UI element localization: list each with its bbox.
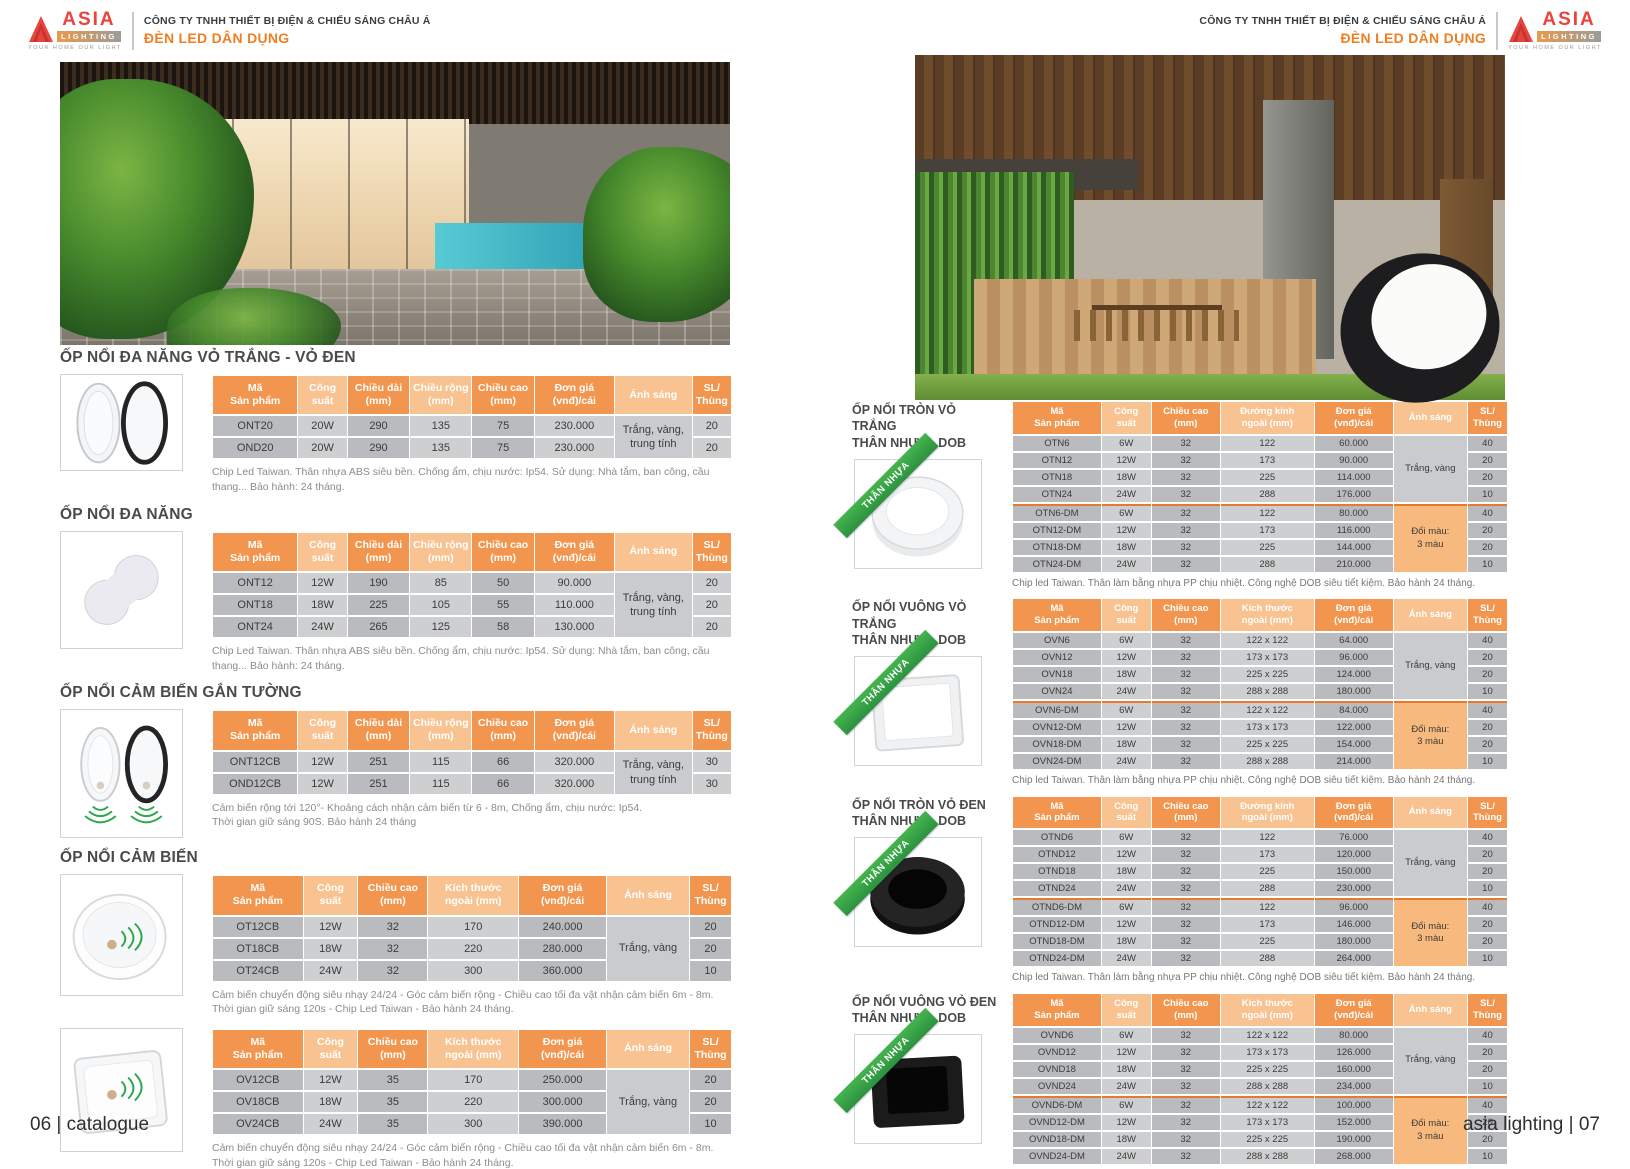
product-code-cell: OVN24 — [1013, 684, 1101, 699]
column-header: Mã Sản phẩm — [213, 876, 303, 914]
column-header: Mã Sản phẩm — [1013, 994, 1101, 1026]
value-cell: 115 — [410, 774, 471, 794]
product-table: Mã Sản phẩmCông suấtChiều cao (mm)Kích t… — [1012, 992, 1508, 1166]
section-op-noi-vuong-vo-trang: ỐP NỔI VUÔNG VỎ TRẮNG THÂN NHỰA - DOB TH… — [852, 597, 1508, 787]
qty-per-box-cell: 20 — [1468, 917, 1507, 932]
column-header: Ánh sáng — [607, 876, 689, 914]
product-code-cell: OVN6-DM — [1013, 701, 1101, 718]
value-cell: 122 x 122 — [1221, 633, 1314, 648]
qty-per-box-cell: 10 — [690, 961, 731, 981]
table-row: OVN66W32122 x 12264.000Trắng, vàng40 — [1013, 633, 1507, 648]
black-round-led-fixture-image — [1333, 242, 1507, 414]
value-cell: 32 — [1152, 1132, 1220, 1147]
qty-per-box-cell: 20 — [693, 595, 731, 615]
value-cell: 173 — [1221, 523, 1314, 538]
product-table: Mã Sản phẩmCông suấtChiều cao (mm)Kích t… — [212, 874, 732, 982]
table-note: Cảm biến chuyển động siêu nhạy 24/24 - G… — [212, 988, 732, 1017]
column-header: Đơn giá (vnđ)/cái — [1315, 994, 1393, 1026]
value-cell: 32 — [1152, 1149, 1220, 1164]
value-cell: 90.000 — [535, 573, 614, 593]
column-header: SL/ Thùng — [690, 876, 731, 914]
company-name: CÔNG TY TNHH THIẾT BỊ ĐIỆN & CHIẾU SÁNG … — [144, 15, 431, 27]
column-header: Ánh sáng — [615, 533, 692, 571]
value-cell: 6W — [1102, 701, 1151, 718]
value-cell: 150.000 — [1315, 864, 1393, 879]
value-cell: 12W — [1102, 847, 1151, 862]
logo-tagline: YOUR HOME OUR LIGHT — [28, 45, 122, 51]
value-cell: 135 — [410, 438, 471, 458]
qty-per-box-cell: 10 — [1468, 557, 1507, 572]
product-code-cell: OVND6 — [1013, 1028, 1101, 1043]
column-header: Ánh sáng — [1394, 797, 1467, 829]
value-cell: 32 — [1152, 453, 1220, 468]
value-cell: 126.000 — [1315, 1045, 1393, 1060]
value-cell: 32 — [1152, 557, 1220, 572]
column-header: Chiều dài (mm) — [348, 533, 409, 571]
product-table: Mã Sản phẩmCông suấtChiều cao (mm)Đường … — [1012, 795, 1508, 969]
product-code-cell: OVN18 — [1013, 667, 1101, 682]
page-header-left: ASIA LIGHTING YOUR HOME OUR LIGHT CÔNG T… — [28, 10, 431, 51]
product-code-cell: OND20 — [213, 438, 297, 458]
product-code-cell: OVN18-DM — [1013, 737, 1101, 752]
qty-per-box-cell: 10 — [1468, 684, 1507, 699]
product-code-cell: OTN24-DM — [1013, 557, 1101, 572]
section-op-noi-cam-bien-square: Mã Sản phẩmCông suấtChiều cao (mm)Kích t… — [60, 1028, 732, 1169]
value-cell: 230.000 — [535, 438, 614, 458]
product-image-round-sensor-light — [60, 874, 183, 996]
value-cell: 288 — [1221, 557, 1314, 572]
value-cell: 12W — [298, 752, 347, 772]
qty-per-box-cell: 20 — [1468, 864, 1507, 879]
value-cell: 32 — [1152, 487, 1220, 502]
value-cell: 265 — [348, 617, 409, 637]
value-cell: 18W — [1102, 470, 1151, 485]
light-color-cell: Trắng, vàng — [1394, 830, 1467, 896]
qty-per-box-cell: 20 — [1468, 737, 1507, 752]
light-color-cell: Trắng, vàng — [607, 1070, 689, 1134]
qty-per-box-cell: 10 — [1468, 951, 1507, 966]
product-code-cell: OTN6-DM — [1013, 504, 1101, 521]
table-row: OV12CB12W35170250.000Trắng, vàng20 — [213, 1070, 731, 1090]
value-cell: 64.000 — [1315, 633, 1393, 648]
value-cell: 75 — [472, 438, 533, 458]
product-code-cell: ONT12 — [213, 573, 297, 593]
qty-per-box-cell: 40 — [1468, 1096, 1507, 1113]
value-cell: 173 x 173 — [1221, 1045, 1314, 1060]
page-right: CÔNG TY TNHH THIẾT BỊ ĐIỆN & CHIẾU SÁNG … — [815, 0, 1630, 1169]
value-cell: 122 — [1221, 504, 1314, 521]
column-header: Chiều cao (mm) — [1152, 994, 1220, 1026]
section-title: ỐP NỔI ĐA NĂNG — [60, 506, 732, 524]
qty-per-box-cell: 20 — [1468, 523, 1507, 538]
column-header: SL/ Thùng — [693, 376, 731, 414]
value-cell: 152.000 — [1315, 1115, 1393, 1130]
qty-per-box-cell: 20 — [690, 1070, 731, 1090]
value-cell: 173 x 173 — [1221, 1115, 1314, 1130]
value-cell: 18W — [1102, 737, 1151, 752]
catalogue-section-name: ĐÈN LED DÂN DỤNG — [144, 30, 431, 46]
qty-per-box-cell: 20 — [1468, 667, 1507, 682]
product-table: Mã Sản phẩmCông suấtChiều cao (mm)Đường … — [1012, 400, 1508, 574]
qty-per-box-cell: 10 — [1468, 881, 1507, 896]
product-code-cell: OV18CB — [213, 1092, 303, 1112]
light-color-cell: Trắng, vàng, trung tính — [615, 416, 692, 458]
column-header: Ánh sáng — [607, 1030, 689, 1068]
value-cell: 251 — [348, 752, 409, 772]
value-cell: 288 x 288 — [1221, 754, 1314, 769]
light-color-cell: Đổi màu: 3 màu — [1394, 701, 1467, 769]
value-cell: 18W — [304, 939, 358, 959]
value-cell: 24W — [1102, 951, 1151, 966]
page-number-right: asia lighting | 07 — [1463, 1114, 1600, 1136]
value-cell: 173 — [1221, 453, 1314, 468]
product-code-cell: ONT20 — [213, 416, 297, 436]
value-cell: 32 — [1152, 898, 1220, 915]
value-cell: 210.000 — [1315, 557, 1393, 572]
product-code-cell: OVND12-DM — [1013, 1115, 1101, 1130]
table-row: OVND66W32122 x 12280.000Trắng, vàng40 — [1013, 1028, 1507, 1043]
light-color-cell: Đổi màu: 3 màu — [1394, 1096, 1467, 1164]
hero-photo-villa — [60, 62, 730, 345]
qty-per-box-cell: 10 — [1468, 754, 1507, 769]
value-cell: 288 x 288 — [1221, 1079, 1314, 1094]
product-code-cell: OTND18-DM — [1013, 934, 1101, 949]
product-code-cell: OVND18-DM — [1013, 1132, 1101, 1147]
value-cell: 170 — [428, 1070, 518, 1090]
value-cell: 173 x 173 — [1221, 720, 1314, 735]
value-cell: 18W — [304, 1092, 358, 1112]
column-header: Kích thước ngoài (mm) — [428, 876, 518, 914]
column-header: SL/ Thùng — [1468, 599, 1507, 631]
product-code-cell: ONT12CB — [213, 752, 297, 772]
value-cell: 120.000 — [1315, 847, 1393, 862]
column-header: SL/ Thùng — [693, 711, 731, 749]
column-header: Công suất — [298, 533, 347, 571]
value-cell: 32 — [358, 961, 427, 981]
value-cell: 32 — [1152, 540, 1220, 555]
value-cell: 6W — [1102, 1096, 1151, 1113]
value-cell: 115 — [410, 752, 471, 772]
value-cell: 32 — [1152, 1028, 1220, 1043]
value-cell: 32 — [1152, 737, 1220, 752]
column-header: Đường kính ngoài (mm) — [1221, 797, 1314, 829]
section-op-noi-tron-vo-den: ỐP NỔI TRÒN VỎ ĐEN THÂN NHỰA - DOB THÂN … — [852, 795, 1508, 985]
value-cell: 122 x 122 — [1221, 701, 1314, 718]
value-cell: 240.000 — [519, 917, 606, 937]
logo-sub-text: LIGHTING — [57, 31, 121, 42]
value-cell: 18W — [1102, 934, 1151, 949]
product-code-cell: OVN24-DM — [1013, 754, 1101, 769]
value-cell: 32 — [1152, 1115, 1220, 1130]
qty-per-box-cell: 30 — [693, 774, 731, 794]
column-header: Đơn giá (vnđ)/cái — [519, 1030, 606, 1068]
value-cell: 96.000 — [1315, 650, 1393, 665]
value-cell: 105 — [410, 595, 471, 615]
value-cell: 146.000 — [1315, 917, 1393, 932]
product-code-cell: OTN18 — [1013, 470, 1101, 485]
value-cell: 66 — [472, 774, 533, 794]
value-cell: 225 — [1221, 540, 1314, 555]
column-header: Chiều cao (mm) — [1152, 402, 1220, 434]
value-cell: 18W — [1102, 540, 1151, 555]
value-cell: 6W — [1102, 830, 1151, 845]
value-cell: 320.000 — [535, 774, 614, 794]
value-cell: 24W — [1102, 487, 1151, 502]
asia-lighting-logo: ASIA LIGHTING YOUR HOME OUR LIGHT — [28, 10, 122, 51]
value-cell: 32 — [1152, 684, 1220, 699]
value-cell: 288 — [1221, 881, 1314, 896]
value-cell: 225 — [1221, 470, 1314, 485]
product-image-peanut-light — [60, 531, 183, 649]
value-cell: 84.000 — [1315, 701, 1393, 718]
light-color-cell: Trắng, vàng — [1394, 436, 1467, 502]
column-header: Công suất — [1102, 994, 1151, 1026]
product-code-cell: OVND12 — [1013, 1045, 1101, 1060]
value-cell: 32 — [1152, 1062, 1220, 1077]
table-row: OT12CB12W32170240.000Trắng, vàng20 — [213, 917, 731, 937]
table-row: OTND66W3212276.000Trắng, vàng40 — [1013, 830, 1507, 845]
table-row: ONT2020W29013575230.000Trắng, vàng, trun… — [213, 416, 731, 436]
qty-per-box-cell: 10 — [1468, 1079, 1507, 1094]
column-header: Đơn giá (vnđ)/cái — [1315, 797, 1393, 829]
value-cell: 35 — [358, 1092, 427, 1112]
product-code-cell: OVN12 — [1013, 650, 1101, 665]
table-note: Chip Led Taiwan. Thân nhựa ABS siêu bền.… — [212, 644, 732, 673]
value-cell: 24W — [1102, 1079, 1151, 1094]
value-cell: 66 — [472, 752, 533, 772]
column-header: Kích thước ngoài (mm) — [428, 1030, 518, 1068]
column-header: Chiều rộng (mm) — [410, 711, 471, 749]
value-cell: 225 x 225 — [1221, 737, 1314, 752]
value-cell: 32 — [1152, 470, 1220, 485]
column-header: Công suất — [1102, 797, 1151, 829]
value-cell: 24W — [1102, 557, 1151, 572]
table-note: Chip led Taiwan. Thân làm bằng nhựa PP c… — [1012, 971, 1508, 985]
product-code-cell: OV24CB — [213, 1114, 303, 1134]
value-cell: 173 — [1221, 917, 1314, 932]
product-code-cell: OVN6 — [1013, 633, 1101, 648]
value-cell: 80.000 — [1315, 504, 1393, 521]
value-cell: 173 — [1221, 847, 1314, 862]
value-cell: 280.000 — [519, 939, 606, 959]
qty-per-box-cell: 20 — [693, 416, 731, 436]
qty-per-box-cell: 40 — [1468, 633, 1507, 648]
product-code-cell: OTND6-DM — [1013, 898, 1101, 915]
logo-brand-text: ASIA — [1542, 10, 1595, 29]
product-image-oval-duo — [60, 374, 183, 471]
company-name: CÔNG TY TNHH THIẾT BỊ ĐIỆN & CHIẾU SÁNG … — [1199, 15, 1486, 27]
table-row: OTN6-DM6W3212280.000Đổi màu: 3 màu40 — [1013, 504, 1507, 521]
value-cell: 6W — [1102, 633, 1151, 648]
table-note: Chip led Taiwan. Thân làm bằng nhựa PP c… — [1012, 774, 1508, 788]
value-cell: 6W — [1102, 436, 1151, 451]
product-code-cell: ONT18 — [213, 595, 297, 615]
product-code-cell: OTN18-DM — [1013, 540, 1101, 555]
qty-per-box-cell: 40 — [1468, 830, 1507, 845]
section-op-noi-cam-bien-gan-tuong: ỐP NỔI CẢM BIẾN GẮN TƯỜNG — [60, 684, 732, 838]
column-header: Đơn giá (vnđ)/cái — [535, 711, 614, 749]
value-cell: 76.000 — [1315, 830, 1393, 845]
column-header: Đơn giá (vnđ)/cái — [519, 876, 606, 914]
value-cell: 225 — [1221, 864, 1314, 879]
column-header: Ánh sáng — [615, 376, 692, 414]
qty-per-box-cell: 40 — [1468, 898, 1507, 915]
value-cell: 35 — [358, 1070, 427, 1090]
section-op-noi-vuong-vo-den: ỐP NỔI VUÔNG VỎ ĐEN THÂN NHỰA - DOB THÂN… — [852, 992, 1508, 1169]
value-cell: 251 — [348, 774, 409, 794]
qty-per-box-cell: 40 — [1468, 436, 1507, 451]
value-cell: 12W — [1102, 453, 1151, 468]
light-color-cell: Trắng, vàng — [607, 917, 689, 981]
value-cell: 144.000 — [1315, 540, 1393, 555]
qty-per-box-cell: 10 — [690, 1114, 731, 1134]
value-cell: 24W — [1102, 881, 1151, 896]
value-cell: 122 — [1221, 898, 1314, 915]
qty-per-box-cell: 10 — [1468, 1149, 1507, 1164]
value-cell: 32 — [1152, 1096, 1220, 1113]
catalogue-section-name: ĐÈN LED DÂN DỤNG — [1341, 30, 1487, 46]
value-cell: 190.000 — [1315, 1132, 1393, 1147]
value-cell: 6W — [1102, 1028, 1151, 1043]
value-cell: 12W — [298, 573, 347, 593]
value-cell: 12W — [298, 774, 347, 794]
column-header: Mã Sản phẩm — [213, 711, 297, 749]
value-cell: 390.000 — [519, 1114, 606, 1134]
value-cell: 225 x 225 — [1221, 1132, 1314, 1147]
column-header: Chiều cao (mm) — [472, 376, 533, 414]
product-code-cell: OTN12-DM — [1013, 523, 1101, 538]
value-cell: 290 — [348, 438, 409, 458]
value-cell: 122 x 122 — [1221, 1096, 1314, 1113]
value-cell: 12W — [1102, 917, 1151, 932]
value-cell: 122 — [1221, 830, 1314, 845]
product-code-cell: OTND12-DM — [1013, 917, 1101, 932]
value-cell: 32 — [1152, 436, 1220, 451]
column-header: Công suất — [304, 1030, 358, 1068]
qty-per-box-cell: 20 — [690, 939, 731, 959]
value-cell: 32 — [358, 939, 427, 959]
value-cell: 220 — [428, 939, 518, 959]
column-header: Đơn giá (vnđ)/cái — [535, 376, 614, 414]
table-row: OTND6-DM6W3212296.000Đổi màu: 3 màu40 — [1013, 898, 1507, 915]
column-header: Chiều cao (mm) — [472, 711, 533, 749]
column-header: Công suất — [298, 711, 347, 749]
product-table: Mã Sản phẩmCông suấtChiều dài (mm)Chiều … — [212, 374, 732, 460]
column-header: Chiều cao (mm) — [472, 533, 533, 571]
value-cell: 100.000 — [1315, 1096, 1393, 1113]
column-header: Mã Sản phẩm — [1013, 599, 1101, 631]
product-code-cell: OTN24 — [1013, 487, 1101, 502]
section-op-noi-cam-bien-round: ỐP NỔI CẢM BIẾN Mã Sản phẩmCôn — [60, 849, 732, 1017]
column-header: Công suất — [1102, 402, 1151, 434]
section-op-noi-tron-vo-trang: ỐP NỔI TRÒN VỎ TRẮNG THÂN NHỰA - DOB THÂ… — [852, 400, 1508, 590]
page-header-right: CÔNG TY TNHH THIẾT BỊ ĐIỆN & CHIẾU SÁNG … — [1199, 10, 1602, 51]
column-header: Chiều cao (mm) — [358, 876, 427, 914]
value-cell: 122 x 122 — [1221, 1028, 1314, 1043]
value-cell: 32 — [1152, 701, 1220, 718]
light-color-cell: Đổi màu: 3 màu — [1394, 504, 1467, 572]
value-cell: 32 — [1152, 951, 1220, 966]
product-image-square-black: THÂN NHỰA — [854, 1034, 982, 1144]
column-header: Chiều cao (mm) — [1152, 797, 1220, 829]
value-cell: 225 — [348, 595, 409, 615]
hero-foliage — [583, 147, 730, 322]
value-cell: 24W — [1102, 1149, 1151, 1164]
light-color-cell: Trắng, vàng, trung tính — [615, 752, 692, 794]
column-header: Mã Sản phẩm — [213, 1030, 303, 1068]
value-cell: 18W — [1102, 1132, 1151, 1147]
value-cell: 300 — [428, 961, 518, 981]
value-cell: 18W — [1102, 667, 1151, 682]
header-divider — [132, 12, 134, 50]
logo-flame-icon — [1509, 16, 1533, 42]
page-number-left: 06 | catalogue — [30, 1114, 149, 1136]
product-code-cell: OVND24-DM — [1013, 1149, 1101, 1164]
value-cell: 55 — [472, 595, 533, 615]
section-title: ỐP NỔI CẢM BIẾN — [60, 849, 732, 867]
column-header: SL/ Thùng — [1468, 797, 1507, 829]
value-cell: 60.000 — [1315, 436, 1393, 451]
value-cell: 24W — [298, 617, 347, 637]
value-cell: 32 — [1152, 934, 1220, 949]
value-cell: 288 — [1221, 951, 1314, 966]
table-row: ONT1212W190855090.000Trắng, vàng, trung … — [213, 573, 731, 593]
value-cell: 24W — [1102, 684, 1151, 699]
value-cell: 20W — [298, 438, 347, 458]
value-cell: 300.000 — [519, 1092, 606, 1112]
product-code-cell: OT12CB — [213, 917, 303, 937]
page-left: ASIA LIGHTING YOUR HOME OUR LIGHT CÔNG T… — [0, 0, 815, 1169]
table-note: Chip Led Taiwan. Thân nhựa ABS siêu bền.… — [212, 465, 732, 494]
value-cell: 18W — [1102, 1062, 1151, 1077]
logo-flame-icon — [29, 16, 53, 42]
table-row: OVND6-DM6W32122 x 122100.000Đổi màu: 3 m… — [1013, 1096, 1507, 1113]
value-cell: 32 — [1152, 1079, 1220, 1094]
product-code-cell: OTN12 — [1013, 453, 1101, 468]
product-code-cell: OTND12 — [1013, 847, 1101, 862]
qty-per-box-cell: 20 — [1468, 650, 1507, 665]
value-cell: 173 x 173 — [1221, 650, 1314, 665]
value-cell: 12W — [1102, 1045, 1151, 1060]
section-op-noi-da-nang-vo-trang-den: ỐP NỔI ĐA NĂNG VỎ TRẮNG - VỎ ĐEN Mã Sản … — [60, 349, 732, 495]
qty-per-box-cell: 20 — [1468, 847, 1507, 862]
product-table: Mã Sản phẩmCông suấtChiều dài (mm)Chiều … — [212, 709, 732, 795]
column-header: Chiều dài (mm) — [348, 376, 409, 414]
value-cell: 360.000 — [519, 961, 606, 981]
column-header: Mã Sản phẩm — [213, 533, 297, 571]
column-header: Mã Sản phẩm — [213, 376, 297, 414]
qty-per-box-cell: 20 — [1468, 453, 1507, 468]
value-cell: 24W — [1102, 754, 1151, 769]
table-note: Chip led Taiwan. Thân làm bằng nhựa PP c… — [1012, 577, 1508, 591]
qty-per-box-cell: 30 — [693, 752, 731, 772]
product-code-cell: OTND24 — [1013, 881, 1101, 896]
product-code-cell: OTND24-DM — [1013, 951, 1101, 966]
product-image-square-white: THÂN NHỰA — [854, 656, 982, 766]
value-cell: 32 — [1152, 650, 1220, 665]
column-header: SL/ Thùng — [1468, 994, 1507, 1026]
value-cell: 250.000 — [519, 1070, 606, 1090]
value-cell: 12W — [1102, 650, 1151, 665]
value-cell: 32 — [1152, 917, 1220, 932]
value-cell: 214.000 — [1315, 754, 1393, 769]
product-image-round-black: THÂN NHỰA — [854, 837, 982, 947]
qty-per-box-cell: 20 — [1468, 540, 1507, 555]
product-code-cell: OVND24 — [1013, 1079, 1101, 1094]
value-cell: 32 — [1152, 504, 1220, 521]
value-cell: 85 — [410, 573, 471, 593]
value-cell: 32 — [1152, 667, 1220, 682]
